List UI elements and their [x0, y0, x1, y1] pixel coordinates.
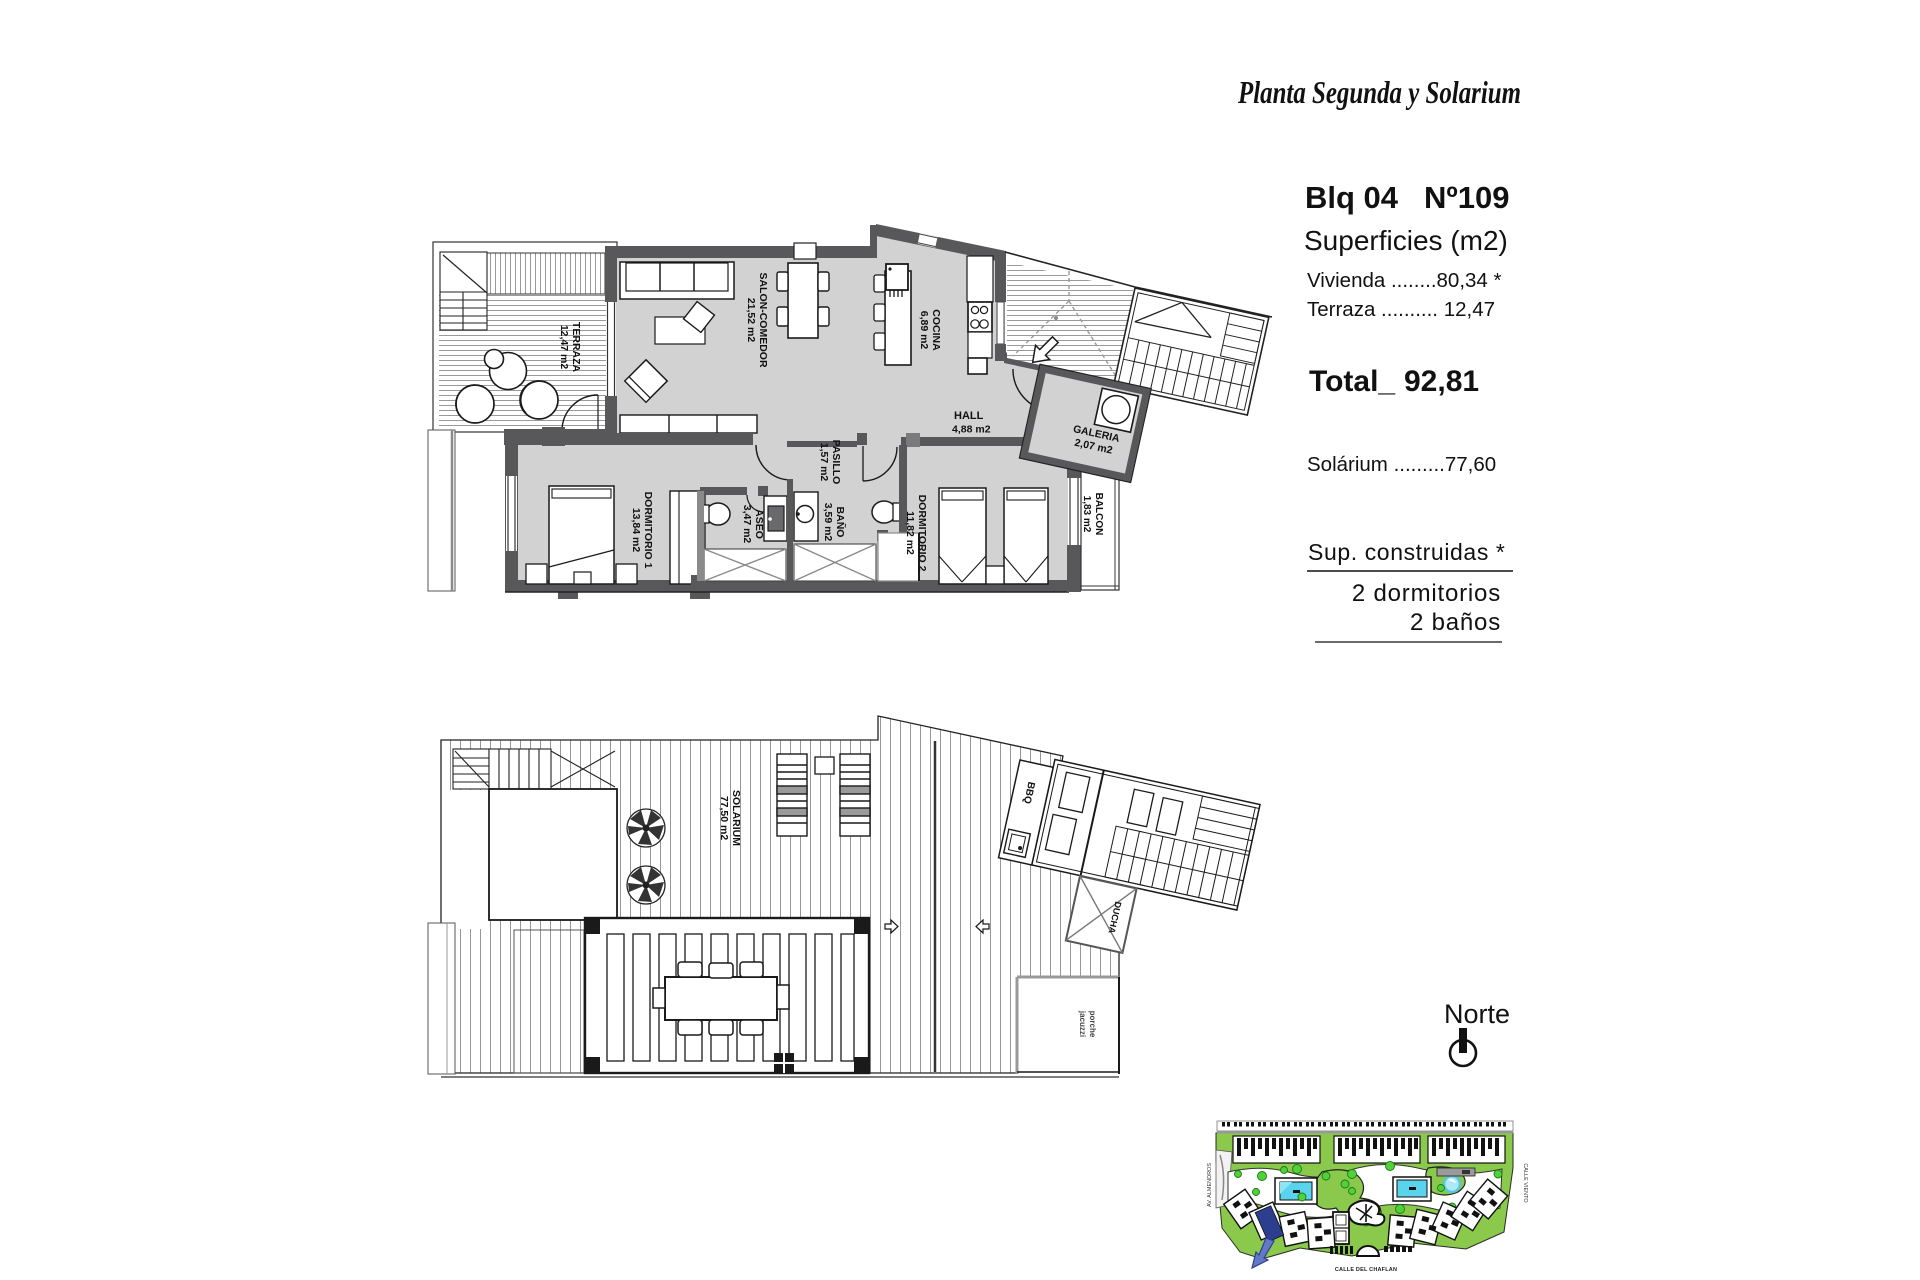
svg-text:Blq 04: Blq 04 [1305, 180, 1399, 215]
svg-text:TERRAZA: TERRAZA [570, 322, 582, 373]
svg-text:DORMITORIO 2: DORMITORIO 2 [916, 495, 928, 572]
svg-text:ASEO: ASEO [753, 509, 765, 539]
svg-text:3,47 m2: 3,47 m2 [741, 505, 753, 544]
svg-text:Sup. construidas *: Sup. construidas * [1308, 539, 1505, 565]
svg-text:SOLARIUM: SOLARIUM [730, 790, 742, 846]
svg-text:2 baños: 2 baños [1410, 609, 1501, 636]
svg-text:Superficies (m2): Superficies (m2) [1304, 225, 1508, 256]
svg-text:jacuzzi: jacuzzi [1078, 1010, 1087, 1037]
svg-text:PASILLO: PASILLO [830, 440, 842, 485]
svg-text:1,57 m2: 1,57 m2 [818, 443, 830, 482]
svg-text:77,50 m2: 77,50 m2 [718, 796, 730, 841]
svg-text:2 dormitorios: 2 dormitorios [1352, 580, 1501, 607]
svg-text:Planta Segunda y Solarium: Planta Segunda y Solarium [1237, 74, 1521, 110]
svg-text:Total_: Total_ [1309, 365, 1395, 398]
svg-text:11,82 m2: 11,82 m2 [904, 511, 916, 555]
svg-text:Solárium .........77,60: Solárium .........77,60 [1307, 453, 1496, 476]
svg-text:92,81: 92,81 [1404, 365, 1479, 398]
svg-text:Nº109: Nº109 [1424, 180, 1509, 215]
svg-text:SALON-COMEDOR: SALON-COMEDOR [757, 272, 769, 367]
svg-text:13,84 m2: 13,84 m2 [630, 508, 642, 553]
svg-text:1,83 m2: 1,83 m2 [1081, 496, 1092, 533]
svg-text:Vivienda ........80,34 *: Vivienda ........80,34 * [1307, 269, 1502, 292]
svg-text:COCINA: COCINA [930, 309, 942, 351]
svg-text:BAÑO: BAÑO [834, 507, 847, 538]
svg-text:porche: porche [1088, 1011, 1097, 1038]
svg-text:CALLE VIENTO: CALLE VIENTO [1522, 1163, 1528, 1203]
svg-text:Norte: Norte [1444, 999, 1510, 1029]
svg-text:AV. ALMENDROS: AV. ALMENDROS [1207, 1163, 1213, 1207]
svg-text:6,89 m2: 6,89 m2 [918, 311, 930, 350]
svg-text:HALL: HALL [954, 410, 984, 422]
svg-text:BALCON: BALCON [1093, 493, 1104, 536]
svg-text:4,88 m2: 4,88 m2 [952, 424, 991, 436]
svg-text:3,59 m2: 3,59 m2 [822, 503, 834, 542]
svg-text:DORMITORIO 1: DORMITORIO 1 [642, 492, 654, 569]
svg-text:12,47 m2: 12,47 m2 [558, 325, 570, 370]
svg-text:Terraza .......... 12,47: Terraza .......... 12,47 [1307, 298, 1495, 321]
svg-text:CALLE DEL CHAFLAN: CALLE DEL CHAFLAN [1335, 1267, 1397, 1273]
svg-text:21,52 m2: 21,52 m2 [745, 298, 757, 343]
